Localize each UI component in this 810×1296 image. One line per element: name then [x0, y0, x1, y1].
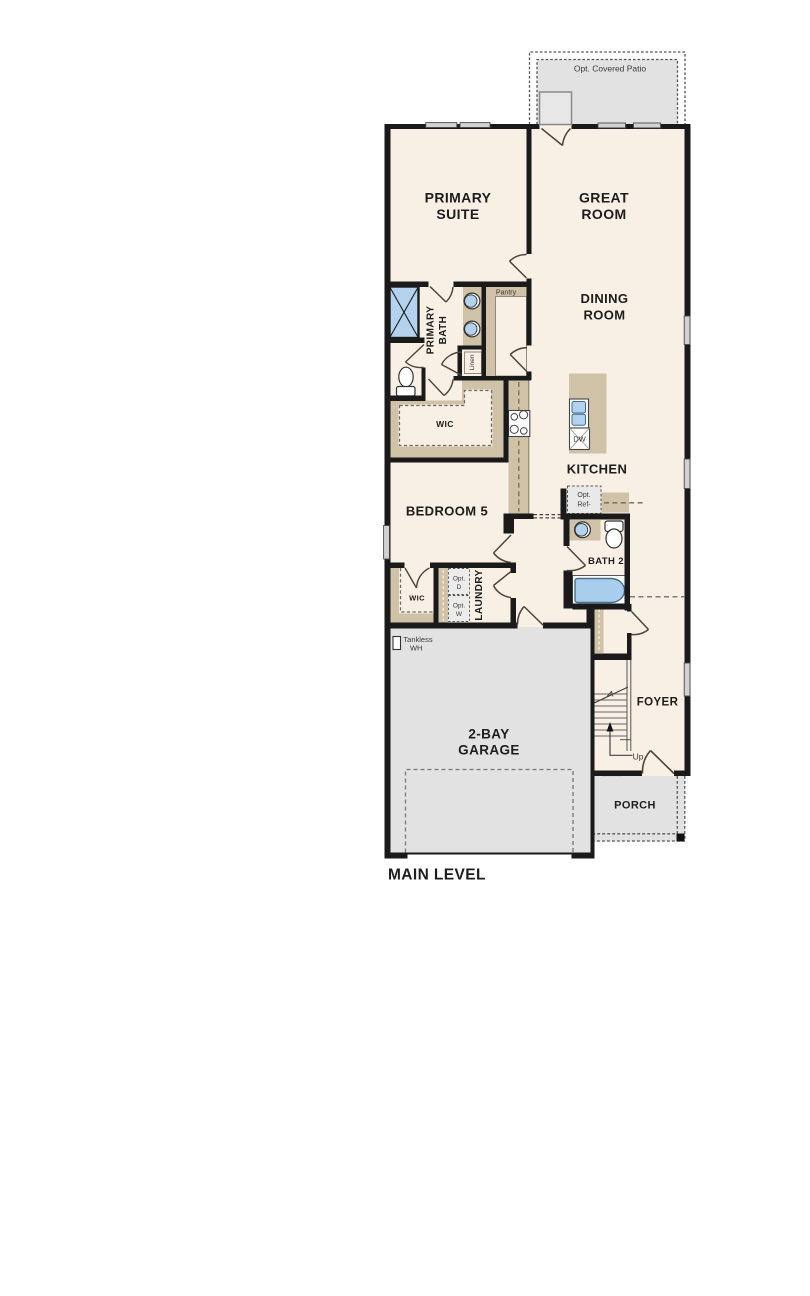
svg-text:GREAT: GREAT — [579, 190, 629, 206]
svg-text:FOYER: FOYER — [637, 697, 679, 709]
svg-text:BATH 2: BATH 2 — [588, 556, 624, 567]
svg-text:Pantry: Pantry — [496, 290, 517, 297]
svg-text:PRIMARY: PRIMARY — [426, 306, 437, 355]
svg-text:WIC: WIC — [436, 419, 454, 429]
svg-text:GARAGE: GARAGE — [458, 743, 520, 758]
svg-text:DW: DW — [573, 435, 586, 444]
svg-text:Opt.: Opt. — [453, 576, 465, 583]
svg-text:MAIN LEVEL: MAIN LEVEL — [388, 867, 486, 884]
svg-text:Linen: Linen — [469, 354, 476, 370]
svg-text:KITCHEN: KITCHEN — [567, 462, 628, 477]
svg-text:DINING: DINING — [581, 291, 629, 306]
svg-text:D: D — [457, 584, 462, 591]
svg-text:2-BAY: 2-BAY — [468, 727, 509, 742]
svg-text:BATH: BATH — [438, 316, 449, 345]
svg-text:BEDROOM 5: BEDROOM 5 — [406, 504, 488, 519]
svg-text:Opt.: Opt. — [577, 492, 590, 499]
svg-text:Opt.: Opt. — [453, 603, 465, 610]
svg-text:SUITE: SUITE — [436, 206, 479, 222]
svg-text:Opt. Covered Patio: Opt. Covered Patio — [574, 64, 647, 74]
svg-text:WH: WH — [410, 644, 423, 653]
svg-text:ROOM: ROOM — [583, 308, 625, 323]
svg-text:PORCH: PORCH — [614, 800, 656, 812]
svg-text:Ref-: Ref- — [577, 502, 591, 509]
svg-text:Up: Up — [633, 752, 644, 762]
svg-text:LAUNDRY: LAUNDRY — [474, 569, 485, 620]
svg-text:W: W — [456, 611, 463, 618]
svg-text:WIC: WIC — [409, 594, 425, 603]
svg-text:ROOM: ROOM — [581, 206, 626, 222]
svg-text:PRIMARY: PRIMARY — [425, 190, 492, 206]
